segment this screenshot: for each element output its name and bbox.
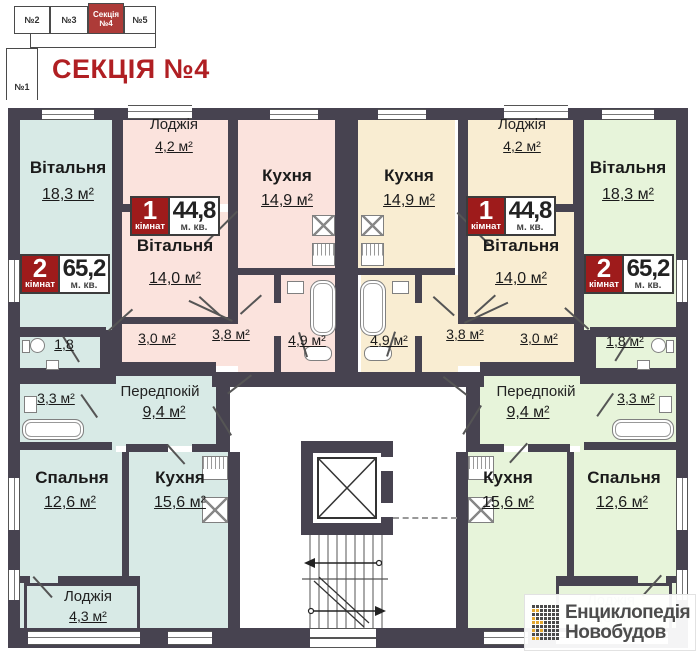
room-name: Спальня (20, 468, 124, 488)
schematic-section-2[interactable]: №2 (14, 6, 50, 34)
wall (192, 444, 228, 452)
bathtub-icon (360, 280, 386, 336)
room-name: Лоджія (48, 588, 128, 605)
wall (468, 444, 504, 452)
wall (20, 442, 112, 450)
apartment-badge-1room-left[interactable]: 1кімнат 44,8м. кв. (130, 196, 220, 236)
window (168, 631, 212, 645)
schematic-section-5[interactable]: №5 (124, 6, 156, 34)
window (8, 570, 20, 600)
window (676, 478, 688, 530)
wall (228, 452, 240, 628)
badge-rooms-count: 2кімнат (586, 256, 624, 292)
sink-icon (637, 360, 650, 370)
schematic-section-3[interactable]: №3 (50, 6, 88, 34)
stove-icon (312, 215, 335, 236)
room-area: 3,8 м² (436, 326, 494, 342)
stove-icon (361, 215, 384, 236)
room-area: 9,4 м² (492, 404, 564, 422)
wall (58, 576, 140, 583)
apartment-badge-2room-left[interactable]: 2кімнат 65,2м. кв. (20, 254, 110, 294)
badge-rooms-count: 1кімнат (132, 198, 170, 234)
window (8, 478, 20, 530)
room-name: Передпокій (104, 383, 216, 400)
wall (112, 317, 238, 324)
window (484, 631, 528, 645)
wall (458, 317, 584, 324)
wall (528, 444, 570, 452)
schematic-section-4-active[interactable]: Секція №4 (88, 3, 124, 34)
schematic-section-1[interactable]: №1 (6, 48, 38, 100)
sink-icon (46, 360, 59, 370)
room-name: Спальня (572, 468, 676, 488)
window (28, 631, 140, 645)
window (8, 260, 20, 302)
wall (676, 108, 688, 648)
room-area: 12,6 м² (20, 494, 120, 512)
sink-icon (287, 281, 304, 294)
room-name: Вітальня (580, 158, 676, 178)
room-area: 18,3 м² (20, 186, 116, 204)
room-name: Вітальня (20, 158, 116, 178)
wall (238, 268, 335, 275)
wall (126, 444, 168, 452)
room-area: 3,0 м² (126, 330, 188, 346)
logo-line2: Новобудов (565, 623, 690, 643)
badge-area: 44,8м. кв. (506, 198, 554, 234)
logo-line1: Енциклопедія (565, 603, 690, 623)
wall (580, 368, 676, 384)
room-area: 12,6 м² (572, 494, 672, 512)
room-area: 1,8 (44, 336, 84, 352)
room-area: 9,4 м² (128, 404, 200, 422)
badge-area: 44,8м. кв. (170, 198, 218, 234)
toilet-tank-icon (666, 340, 674, 353)
wall (415, 275, 422, 303)
room-name: Кухня (244, 166, 330, 186)
room-name: Кухня (136, 468, 224, 488)
toilet-tank-icon (22, 340, 30, 353)
elevator-shaft (301, 441, 393, 535)
bathtub-icon (22, 419, 84, 440)
window (676, 260, 688, 302)
room-area: 4,9 м² (360, 332, 418, 348)
room-area: 14,0 м² (128, 270, 222, 288)
room-area: 3,3 м² (604, 390, 668, 406)
apartment-badge-1room-right[interactable]: 1кімнат 44,8м. кв. (466, 196, 556, 236)
room-area: 4,3 м² (52, 608, 124, 624)
wall (556, 576, 638, 583)
window (602, 109, 654, 120)
kitchen-sink-icon (361, 243, 384, 266)
toilet-icon (30, 338, 45, 353)
staircase (302, 535, 388, 628)
room-name: Лоджія (480, 116, 564, 133)
logo-text: Енциклопедія Новобудов (565, 603, 690, 643)
section-label: №3 (61, 15, 76, 25)
kitchen-sink-icon (312, 243, 335, 266)
room-name: Лоджія (132, 116, 216, 133)
building-schematic: №2 №3 Секція №4 №5 №1 (0, 0, 230, 100)
room-area: 14,9 м² (242, 192, 332, 210)
room-name: Вітальня (128, 236, 222, 256)
bathtub-icon (310, 280, 336, 336)
room-area: 4,2 м² (484, 138, 560, 154)
room-area: 18,3 м² (580, 186, 676, 204)
wall (212, 372, 484, 387)
window (270, 109, 318, 120)
room-name: Передпокій (480, 383, 592, 400)
entrance-opening (310, 628, 376, 648)
window (42, 109, 94, 120)
wall (20, 368, 116, 384)
room-area: 14,9 м² (364, 192, 454, 210)
room-name: Кухня (366, 166, 452, 186)
room-name: Кухня (464, 468, 552, 488)
corridor-dashed-line (393, 517, 457, 519)
badge-rooms-count: 2кімнат (22, 256, 60, 292)
watermark-logo[interactable]: Енциклопедія Новобудов (524, 594, 696, 651)
wall (8, 108, 20, 648)
building-footprint (30, 33, 156, 48)
section-label: Секція №4 (90, 10, 122, 28)
wall (335, 108, 358, 372)
apartment-badge-2room-right[interactable]: 2кімнат 65,2м. кв. (584, 254, 674, 294)
section-label: №2 (24, 15, 39, 25)
room-area: 4,9 м² (278, 332, 336, 348)
wall (584, 442, 676, 450)
room-name: Вітальня (474, 236, 568, 256)
bathtub-icon (612, 419, 674, 440)
room-area: 3,3 м² (24, 390, 88, 406)
wall (20, 576, 30, 583)
logo-grid-icon (532, 605, 559, 640)
room-area: 3,0 м² (508, 330, 570, 346)
room-area: 14,0 м² (474, 270, 568, 288)
section-label: №5 (132, 15, 147, 25)
window (378, 109, 426, 120)
room-area: 15,6 м² (134, 494, 226, 512)
room-area: 4,2 м² (136, 138, 212, 154)
badge-rooms-count: 1кімнат (468, 198, 506, 234)
room-area: 15,6 м² (462, 494, 554, 512)
section-label: №1 (14, 82, 29, 92)
washer-icon (304, 346, 332, 361)
badge-area: 65,2м. кв. (60, 256, 108, 292)
badge-area: 65,2м. кв. (624, 256, 672, 292)
room-area: 1,8 м² (596, 333, 654, 349)
wall (666, 576, 676, 583)
wall (108, 362, 216, 376)
page-title: СЕКЦІЯ №4 (52, 54, 210, 85)
sink-icon (392, 281, 409, 294)
wall (480, 362, 588, 376)
wall (274, 275, 281, 303)
wall (358, 268, 455, 275)
room-area: 3,8 м² (202, 326, 260, 342)
